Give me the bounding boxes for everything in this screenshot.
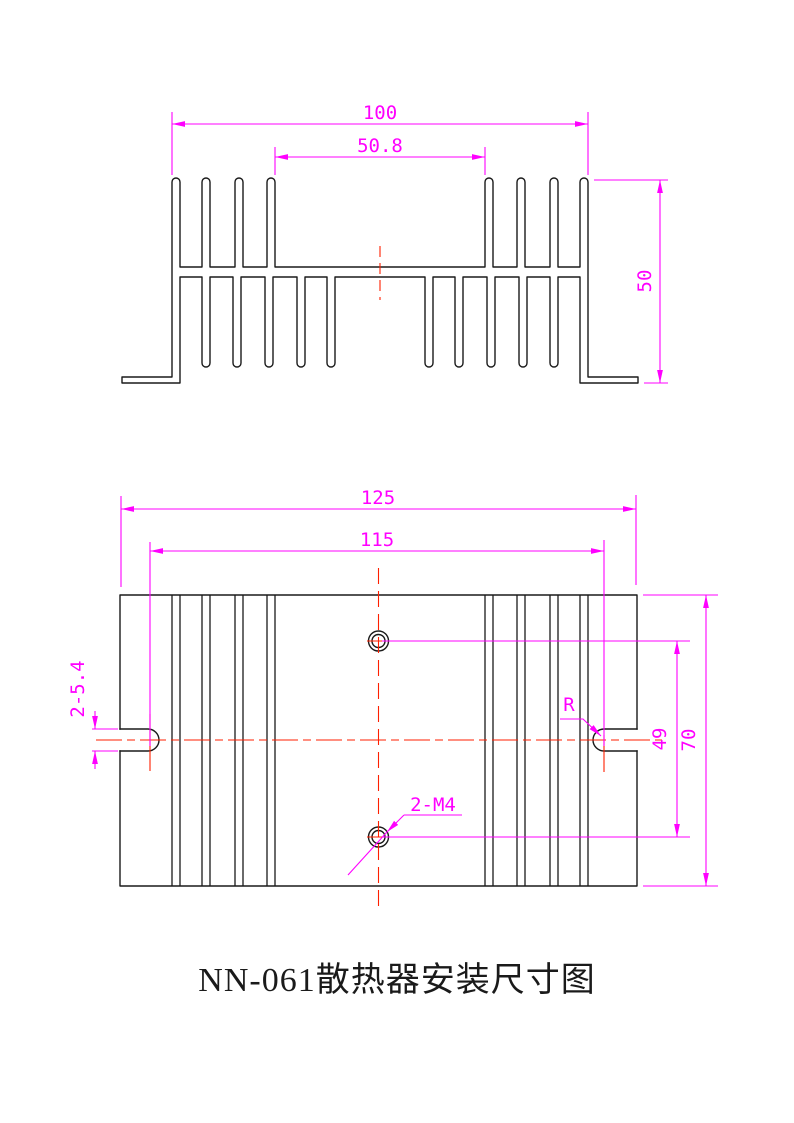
dim-slot-spacing: 115	[150, 529, 604, 746]
dim-height: 50	[594, 180, 668, 383]
leader-tail	[348, 832, 387, 875]
dim-hole-spacing-value: 49	[649, 728, 671, 751]
plan-outline-lower	[120, 751, 637, 886]
dim-module-gap-value: 50.8	[357, 135, 403, 157]
dim-hole-spacing: 49	[649, 641, 677, 837]
dim-height-value: 50	[634, 270, 656, 293]
dim-slot-spacing-value: 115	[360, 529, 394, 551]
thread-callout: 2-M4	[348, 794, 462, 875]
dim-fin-span-value: 100	[363, 102, 397, 124]
dim-slot-width-value: 2-5.4	[67, 660, 89, 717]
dim-module-gap: 50.8	[275, 135, 485, 175]
plan-view: 125 115 2-5.4 R 2-M4	[67, 487, 718, 912]
dim-depth-value: 70	[678, 729, 700, 752]
leader-arrow	[387, 815, 404, 832]
section-view: 100 50.8 50	[122, 102, 668, 383]
drawing-title: NN-061散热器安装尺寸图	[0, 952, 794, 1001]
dim-overall-width-value: 125	[361, 487, 395, 509]
thread-label: 2-M4	[410, 794, 456, 816]
dim-slot-width: 2-5.4	[67, 660, 118, 769]
radius-label: R	[563, 694, 575, 716]
